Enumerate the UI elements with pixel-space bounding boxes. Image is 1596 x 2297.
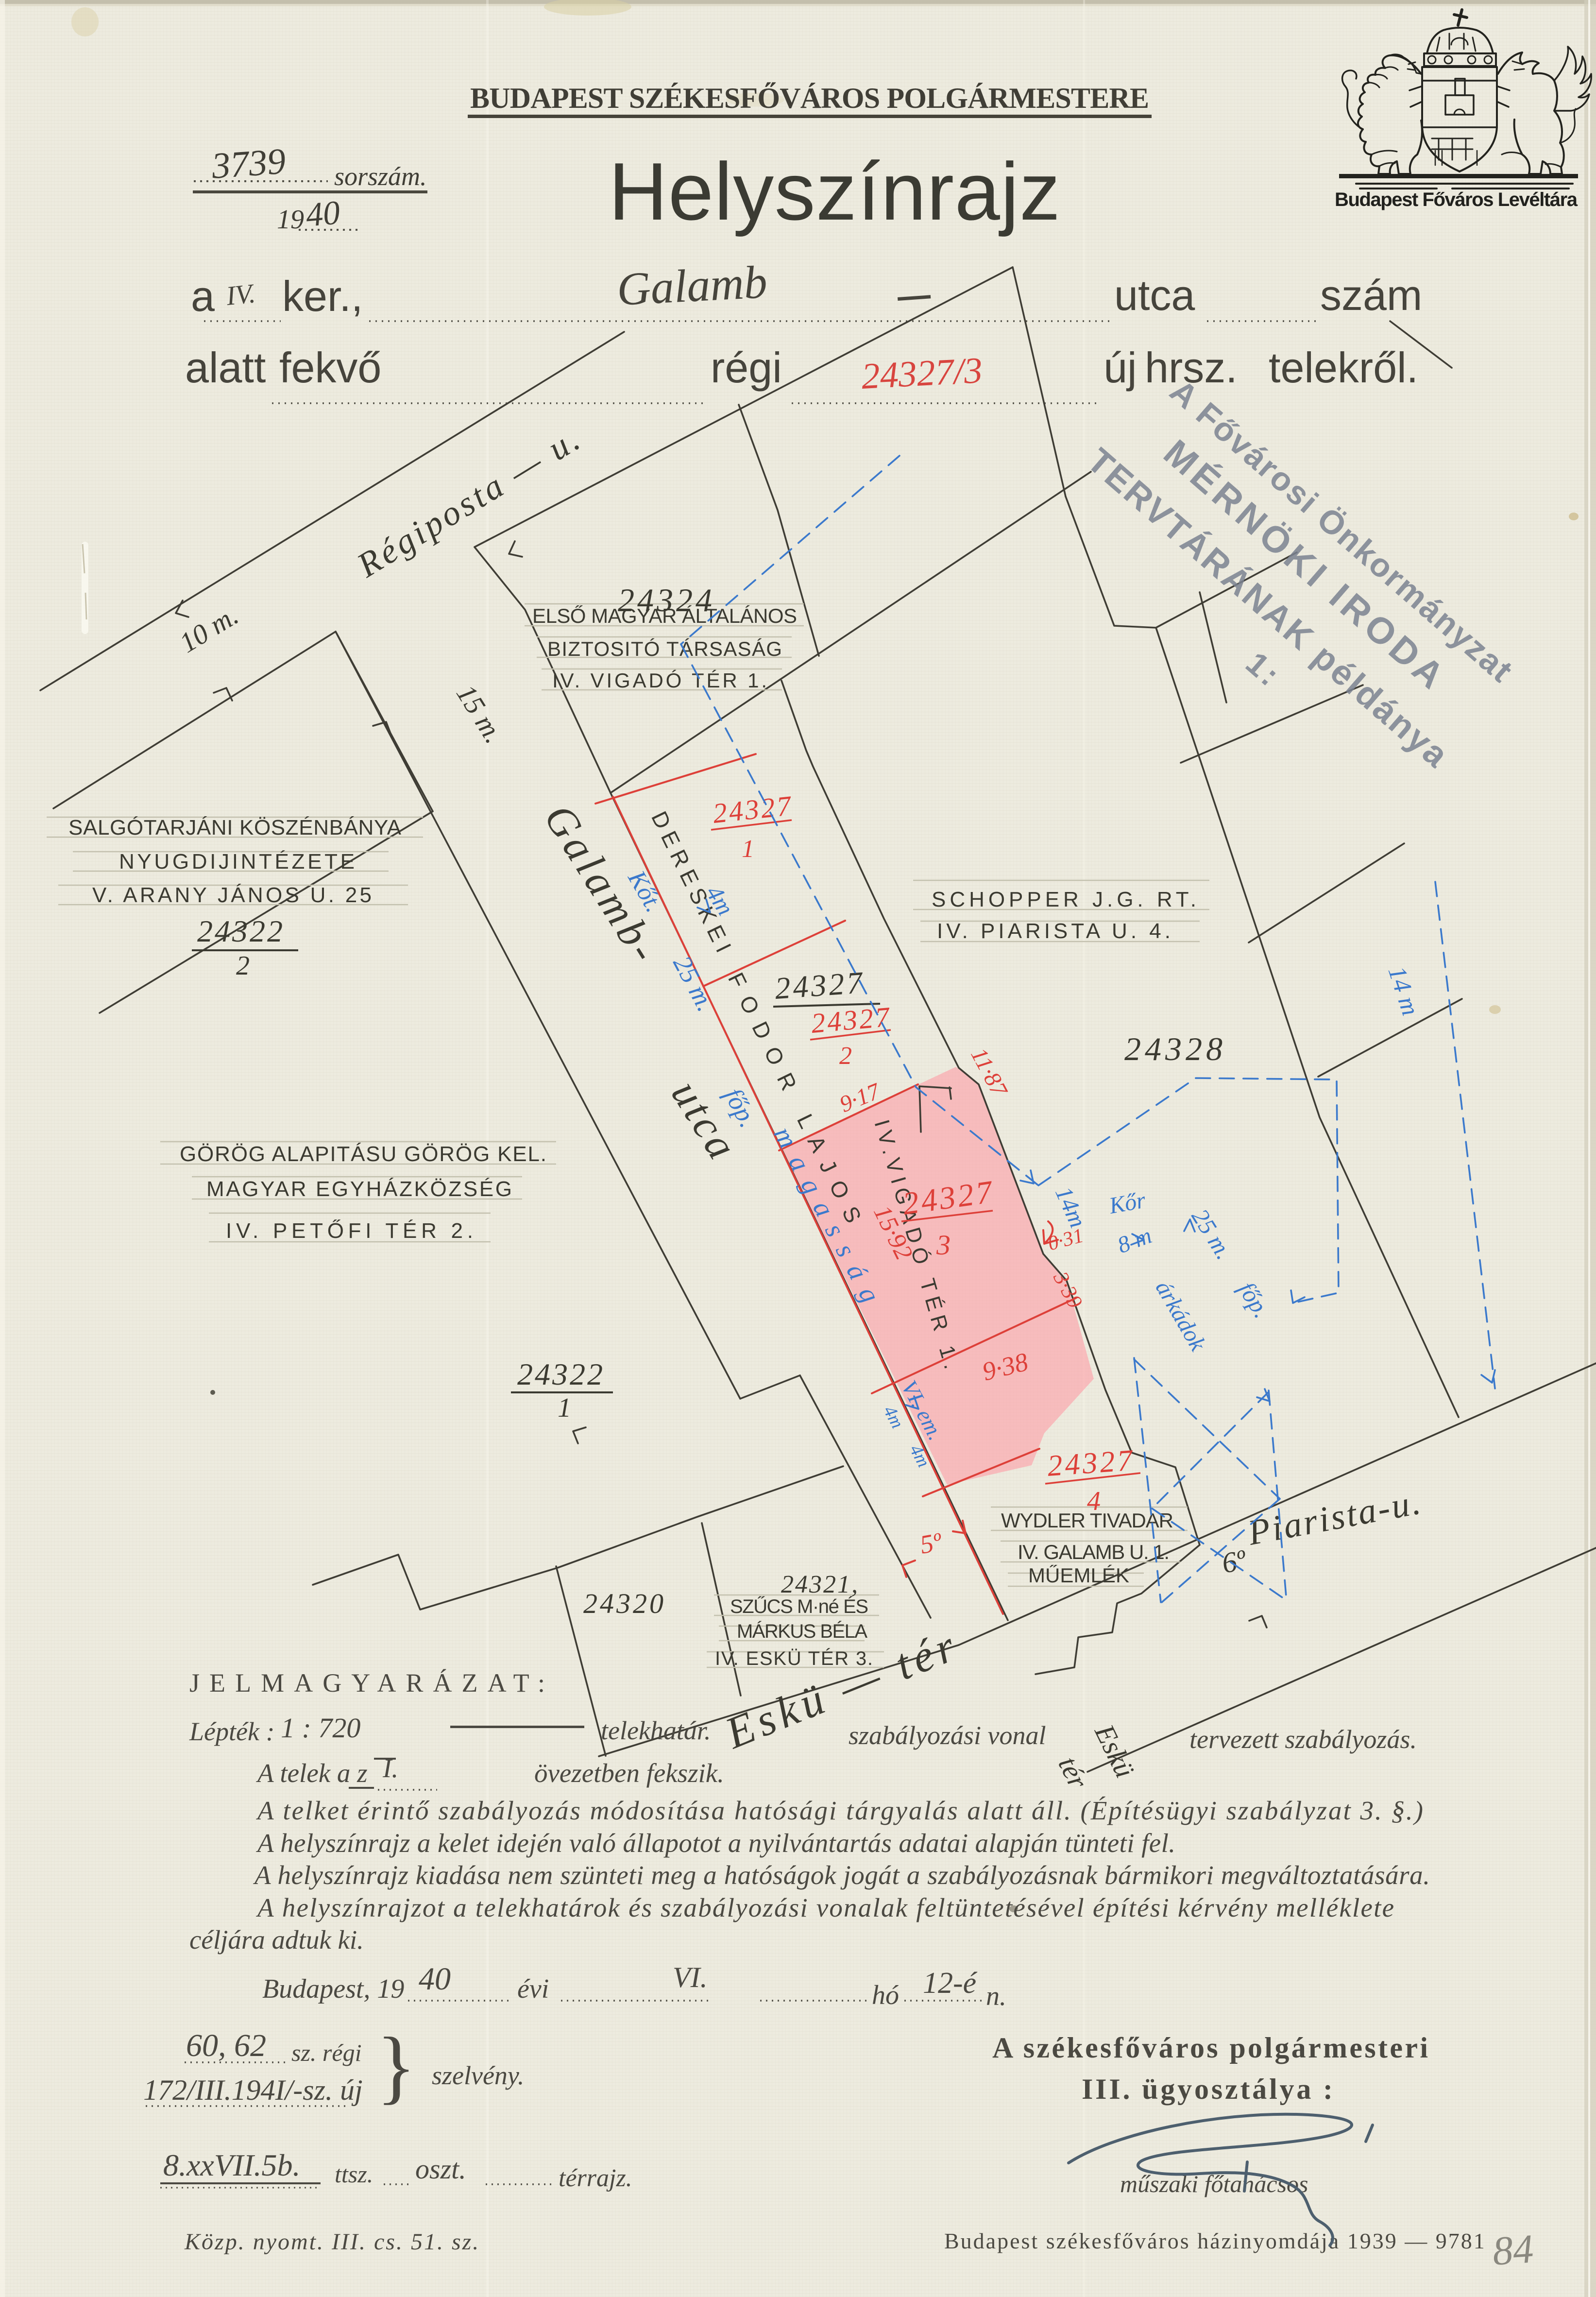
svg-text:tér: tér <box>1052 1751 1094 1794</box>
svg-text:Kőr: Kőr <box>1107 1187 1148 1219</box>
svg-text:24327/3: 24327/3 <box>860 350 983 397</box>
svg-text:24322: 24322 <box>197 914 285 948</box>
svg-text:Helyszínrajz: Helyszínrajz <box>609 146 1060 237</box>
svg-text:A Fővárosi Önkormányzat: A Fővárosi Önkormányzat <box>1163 373 1520 690</box>
svg-text:SCHOPPER J.G. RT.: SCHOPPER J.G. RT. <box>932 888 1200 911</box>
svg-text:1: 1 <box>558 1393 571 1423</box>
svg-text:sz. régi: sz. régi <box>291 2039 361 2066</box>
svg-text:5º: 5º <box>918 1527 945 1560</box>
svg-text:Galamb: Galamb <box>615 256 768 315</box>
svg-text:24328: 24328 <box>1124 1030 1226 1067</box>
svg-text:szám: szám <box>1320 271 1422 319</box>
svg-text:IV. GALAMB U. 1.: IV. GALAMB U. 1. <box>1018 1541 1173 1563</box>
svg-text:GÖRÖG ALAPITÁSU GÖRÖG KEL.: GÖRÖG ALAPITÁSU GÖRÖG KEL. <box>180 1142 550 1166</box>
svg-text:1:: 1: <box>1239 645 1289 694</box>
svg-text:40: 40 <box>419 1961 451 1997</box>
svg-text:fekvő: fekvő <box>279 343 381 392</box>
svg-text:utca: utca <box>1114 271 1195 319</box>
svg-text:a: a <box>191 272 215 320</box>
svg-text:A telket érintő szabályozás mó: A telket érintő szabályozás módosítása h… <box>255 1796 1423 1825</box>
svg-text:A helyszínrajz kiadása nem szü: A helyszínrajz kiadása nem szünteti meg … <box>253 1860 1430 1890</box>
svg-text:A helyszínrajzot a telekhatáro: A helyszínrajzot a telekhatárok és szabá… <box>255 1893 1394 1922</box>
svg-text:24321,: 24321, <box>781 1571 859 1598</box>
svg-text:25 m.: 25 m. <box>667 951 720 1016</box>
svg-text:IV. PETŐFI TÉR 2.: IV. PETŐFI TÉR 2. <box>226 1219 476 1243</box>
svg-text:oszt.: oszt. <box>415 2153 466 2185</box>
svg-text:25 m.: 25 m. <box>1187 1204 1238 1264</box>
svg-text:telekhatár.: telekhatár. <box>601 1716 711 1745</box>
svg-text:14 m: 14 m <box>1383 963 1425 1019</box>
svg-text:n.: n. <box>986 1981 1006 2011</box>
svg-text:24327: 24327 <box>774 965 866 1006</box>
svg-text:szabályozási vonal: szabályozási vonal <box>849 1721 1046 1750</box>
svg-text:céljára adtuk ki.: céljára adtuk ki. <box>189 1925 364 1954</box>
svg-text:8.xxVII.5b.: 8.xxVII.5b. <box>163 2148 301 2182</box>
svg-text:főp.: főp. <box>1233 1277 1276 1322</box>
svg-text:2: 2 <box>839 1042 852 1070</box>
svg-text:A telek a z: A telek a z <box>255 1758 368 1788</box>
svg-text:3739: 3739 <box>210 141 287 187</box>
svg-text:JELMAGYARÁZAT:: JELMAGYARÁZAT: <box>189 1668 553 1697</box>
svg-text:Piarista-u.: Piarista-u. <box>1244 1482 1425 1553</box>
svg-text:V. ARANY JÁNOS U. 25: V. ARANY JÁNOS U. 25 <box>92 883 375 907</box>
svg-text:1 : 720: 1 : 720 <box>281 1712 360 1744</box>
svg-text:térrajz.: térrajz. <box>559 2164 632 2192</box>
svg-text:MÁRKUS BÉLA: MÁRKUS BÉLA <box>737 1620 871 1642</box>
svg-text:NYUGDIJINTÉZETE: NYUGDIJINTÉZETE <box>119 850 358 874</box>
svg-text:új: új <box>1104 343 1137 392</box>
svg-text:évi: évi <box>517 1974 549 2004</box>
svg-text:Budapest Főváros Levéltára: Budapest Főváros Levéltára <box>1335 189 1578 210</box>
svg-text:hó: hó <box>872 1980 899 2010</box>
svg-text:MŰEMLÉK: MŰEMLÉK <box>1028 1564 1133 1587</box>
svg-text:sorszám.: sorszám. <box>334 162 427 191</box>
svg-text:telekről.: telekről. <box>1269 343 1418 392</box>
svg-text:10 m.: 10 m. <box>174 599 244 659</box>
svg-text:12-é: 12-é <box>923 1967 978 2000</box>
svg-text:2: 2 <box>236 951 250 981</box>
svg-text:árkádok: árkádok <box>1150 1276 1211 1356</box>
svg-text:24327: 24327 <box>712 789 795 829</box>
svg-text:IV. VIGADÓ TÉR 1.: IV. VIGADÓ TÉR 1. <box>552 669 769 692</box>
svg-text:alatt: alatt <box>185 343 266 392</box>
svg-text:övezetben fekszik.: övezetben fekszik. <box>534 1758 724 1788</box>
svg-text:60, 62: 60, 62 <box>186 2028 266 2063</box>
svg-text:SZŰCS M·né ÉS: SZŰCS M·né ÉS <box>730 1595 872 1617</box>
svg-text:SALGÓTARJÁNI KÖSZÉNBÁNYA: SALGÓTARJÁNI KÖSZÉNBÁNYA <box>68 816 405 840</box>
svg-text:Lépték :: Lépték : <box>189 1717 274 1746</box>
svg-text:BIZTOSITÓ TÁRSASÁG: BIZTOSITÓ TÁRSASÁG <box>547 637 784 660</box>
svg-text:ker.,: ker., <box>282 272 363 320</box>
svg-text:24327: 24327 <box>1046 1444 1136 1483</box>
svg-text:A helyszínrajz a kelet idején: A helyszínrajz a kelet idején való állap… <box>255 1828 1175 1858</box>
svg-text:15 m.: 15 m. <box>450 679 510 749</box>
svg-text:Budapest, 19: Budapest, 19 <box>262 1974 404 2004</box>
svg-text:84: 84 <box>1491 2226 1535 2274</box>
svg-text:ttsz.: ttsz. <box>335 2160 373 2188</box>
svg-text:14m: 14m <box>1050 1183 1092 1232</box>
svg-text:4: 4 <box>1087 1486 1101 1516</box>
svg-text:III. ügyosztálya :: III. ügyosztálya : <box>1082 2073 1333 2105</box>
svg-text:24327: 24327 <box>810 1001 892 1039</box>
svg-text:MAGYAR EGYHÁZKÖZSÉG: MAGYAR EGYHÁZKÖZSÉG <box>206 1177 515 1201</box>
svg-text:BUDAPEST SZÉKESFŐVÁROS POLGÁRM: BUDAPEST SZÉKESFŐVÁROS POLGÁRMESTERE <box>470 82 1150 114</box>
svg-text:40: 40 <box>305 194 341 234</box>
svg-text:szelvény.: szelvény. <box>432 2061 524 2090</box>
svg-text:Eskü: Eskü <box>1088 1719 1141 1783</box>
svg-text:IV.: IV. <box>224 278 257 311</box>
svg-text:172/III.194I/-sz. új: 172/III.194I/-sz. új <box>143 2074 363 2106</box>
svg-text:24322: 24322 <box>517 1357 605 1391</box>
svg-text:régi: régi <box>711 343 782 392</box>
svg-text:Közp. nyomt. III. cs. 51. sz.: Közp. nyomt. III. cs. 51. sz. <box>184 2229 480 2255</box>
svg-text:3: 3 <box>936 1229 951 1261</box>
svg-text:Régiposta — u.: Régiposta — u. <box>350 418 589 585</box>
svg-text:IV. PIARISTA U. 4.: IV. PIARISTA U. 4. <box>937 919 1174 943</box>
svg-text:}: } <box>376 2021 416 2112</box>
svg-text:tervezett szabályozás.: tervezett szabályozás. <box>1189 1725 1417 1754</box>
svg-text:Budapest székesfőváros házinyo: Budapest székesfőváros házinyomdája 1939… <box>944 2228 1486 2253</box>
svg-text:0·31: 0·31 <box>1046 1224 1086 1255</box>
svg-text:24324: 24324 <box>618 582 715 618</box>
svg-text:1: 1 <box>742 835 754 863</box>
svg-text:VI.: VI. <box>673 1961 708 1993</box>
svg-text:A székesfőváros polgármesteri: A székesfőváros polgármesteri <box>992 2032 1428 2064</box>
svg-text:8 m: 8 m <box>1114 1222 1155 1258</box>
svg-text:24320: 24320 <box>583 1588 666 1619</box>
